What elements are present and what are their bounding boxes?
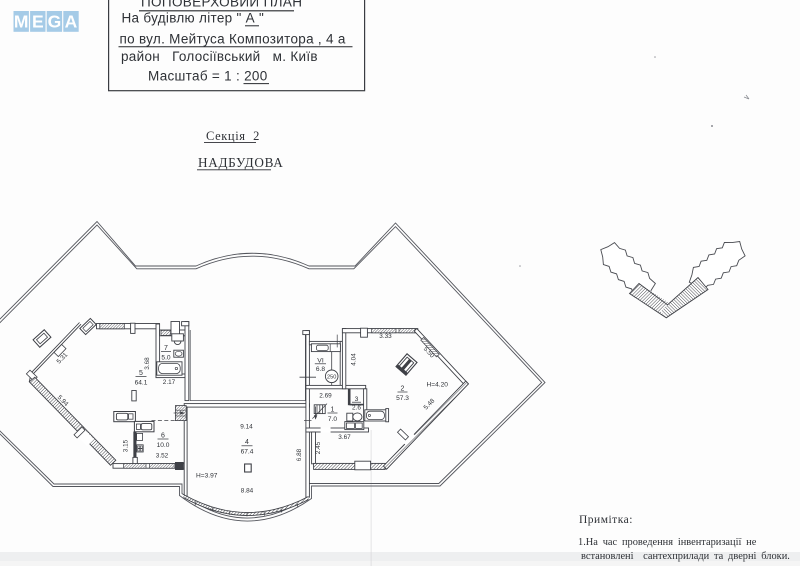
svg-text:2: 2 (401, 385, 405, 392)
svg-text:3.33: 3.33 (379, 333, 392, 340)
svg-text:57.3: 57.3 (396, 395, 409, 402)
svg-text:2.69: 2.69 (319, 393, 332, 400)
svg-text:7: 7 (164, 345, 168, 352)
svg-text:3.15: 3.15 (123, 439, 130, 452)
svg-text:6.8: 6.8 (316, 366, 325, 373)
svg-text:2.45: 2.45 (315, 441, 322, 454)
svg-text:Н=4.20: Н=4.20 (427, 381, 449, 388)
svg-text:3.67: 3.67 (338, 434, 351, 441)
svg-text:5: 5 (139, 370, 143, 377)
svg-text:A: A (65, 12, 78, 32)
svg-text:6.88: 6.88 (296, 448, 303, 461)
svg-text:1: 1 (331, 406, 335, 413)
svg-text:5.0: 5.0 (161, 354, 170, 361)
svg-text:Масштаб = 1 : 200: Масштаб = 1 : 200 (148, 69, 268, 84)
svg-text:VI: VI (317, 357, 324, 364)
svg-text:3: 3 (355, 396, 359, 403)
svg-text:1.На час проведення інвентариз: 1.На час проведення інвентаризації не (578, 537, 757, 548)
svg-text:10.0: 10.0 (157, 442, 170, 449)
svg-text:Н=3.97: Н=3.97 (196, 473, 218, 480)
svg-text:район Голосіївський м. Киї: район Голосіївський м. Київ (121, 49, 318, 64)
svg-text:Примітка:: Примітка: (579, 514, 633, 526)
svg-text:64.1: 64.1 (135, 379, 148, 386)
svg-text:6: 6 (161, 432, 165, 439)
svg-text:по вул. Мейтуса Композитора ,: по вул. Мейтуса Композитора , 4 а (120, 32, 346, 47)
svg-text:250: 250 (327, 374, 336, 380)
svg-text:7.0: 7.0 (328, 416, 337, 423)
svg-text:3.52: 3.52 (156, 452, 169, 459)
svg-text:9.14: 9.14 (240, 424, 253, 431)
svg-text:НАДБУДОВА: НАДБУДОВА (198, 155, 283, 170)
svg-text:3.68: 3.68 (144, 357, 151, 370)
svg-text:M: M (14, 12, 29, 32)
svg-text:4.04: 4.04 (351, 353, 358, 366)
svg-text:2.17: 2.17 (163, 379, 176, 386)
svg-text:8.84: 8.84 (241, 487, 254, 494)
svg-text:ПОПОВЕРХОВИЙ ПЛАН: ПОПОВЕРХОВИЙ ПЛАН (141, 0, 302, 10)
svg-text:встановлені сантехприлади та: встановлені сантехприлади та дверні блок… (581, 551, 790, 562)
svg-text:E: E (32, 12, 44, 32)
svg-text:4: 4 (245, 439, 249, 446)
svg-text:2.6: 2.6 (352, 404, 361, 411)
svg-text:G: G (48, 12, 62, 32)
svg-text:Секція 2: Секція 2 (206, 129, 260, 143)
svg-text:67.4: 67.4 (241, 449, 254, 456)
svg-text:На будівлю літер " А ": На будівлю літер " А " (122, 11, 265, 26)
